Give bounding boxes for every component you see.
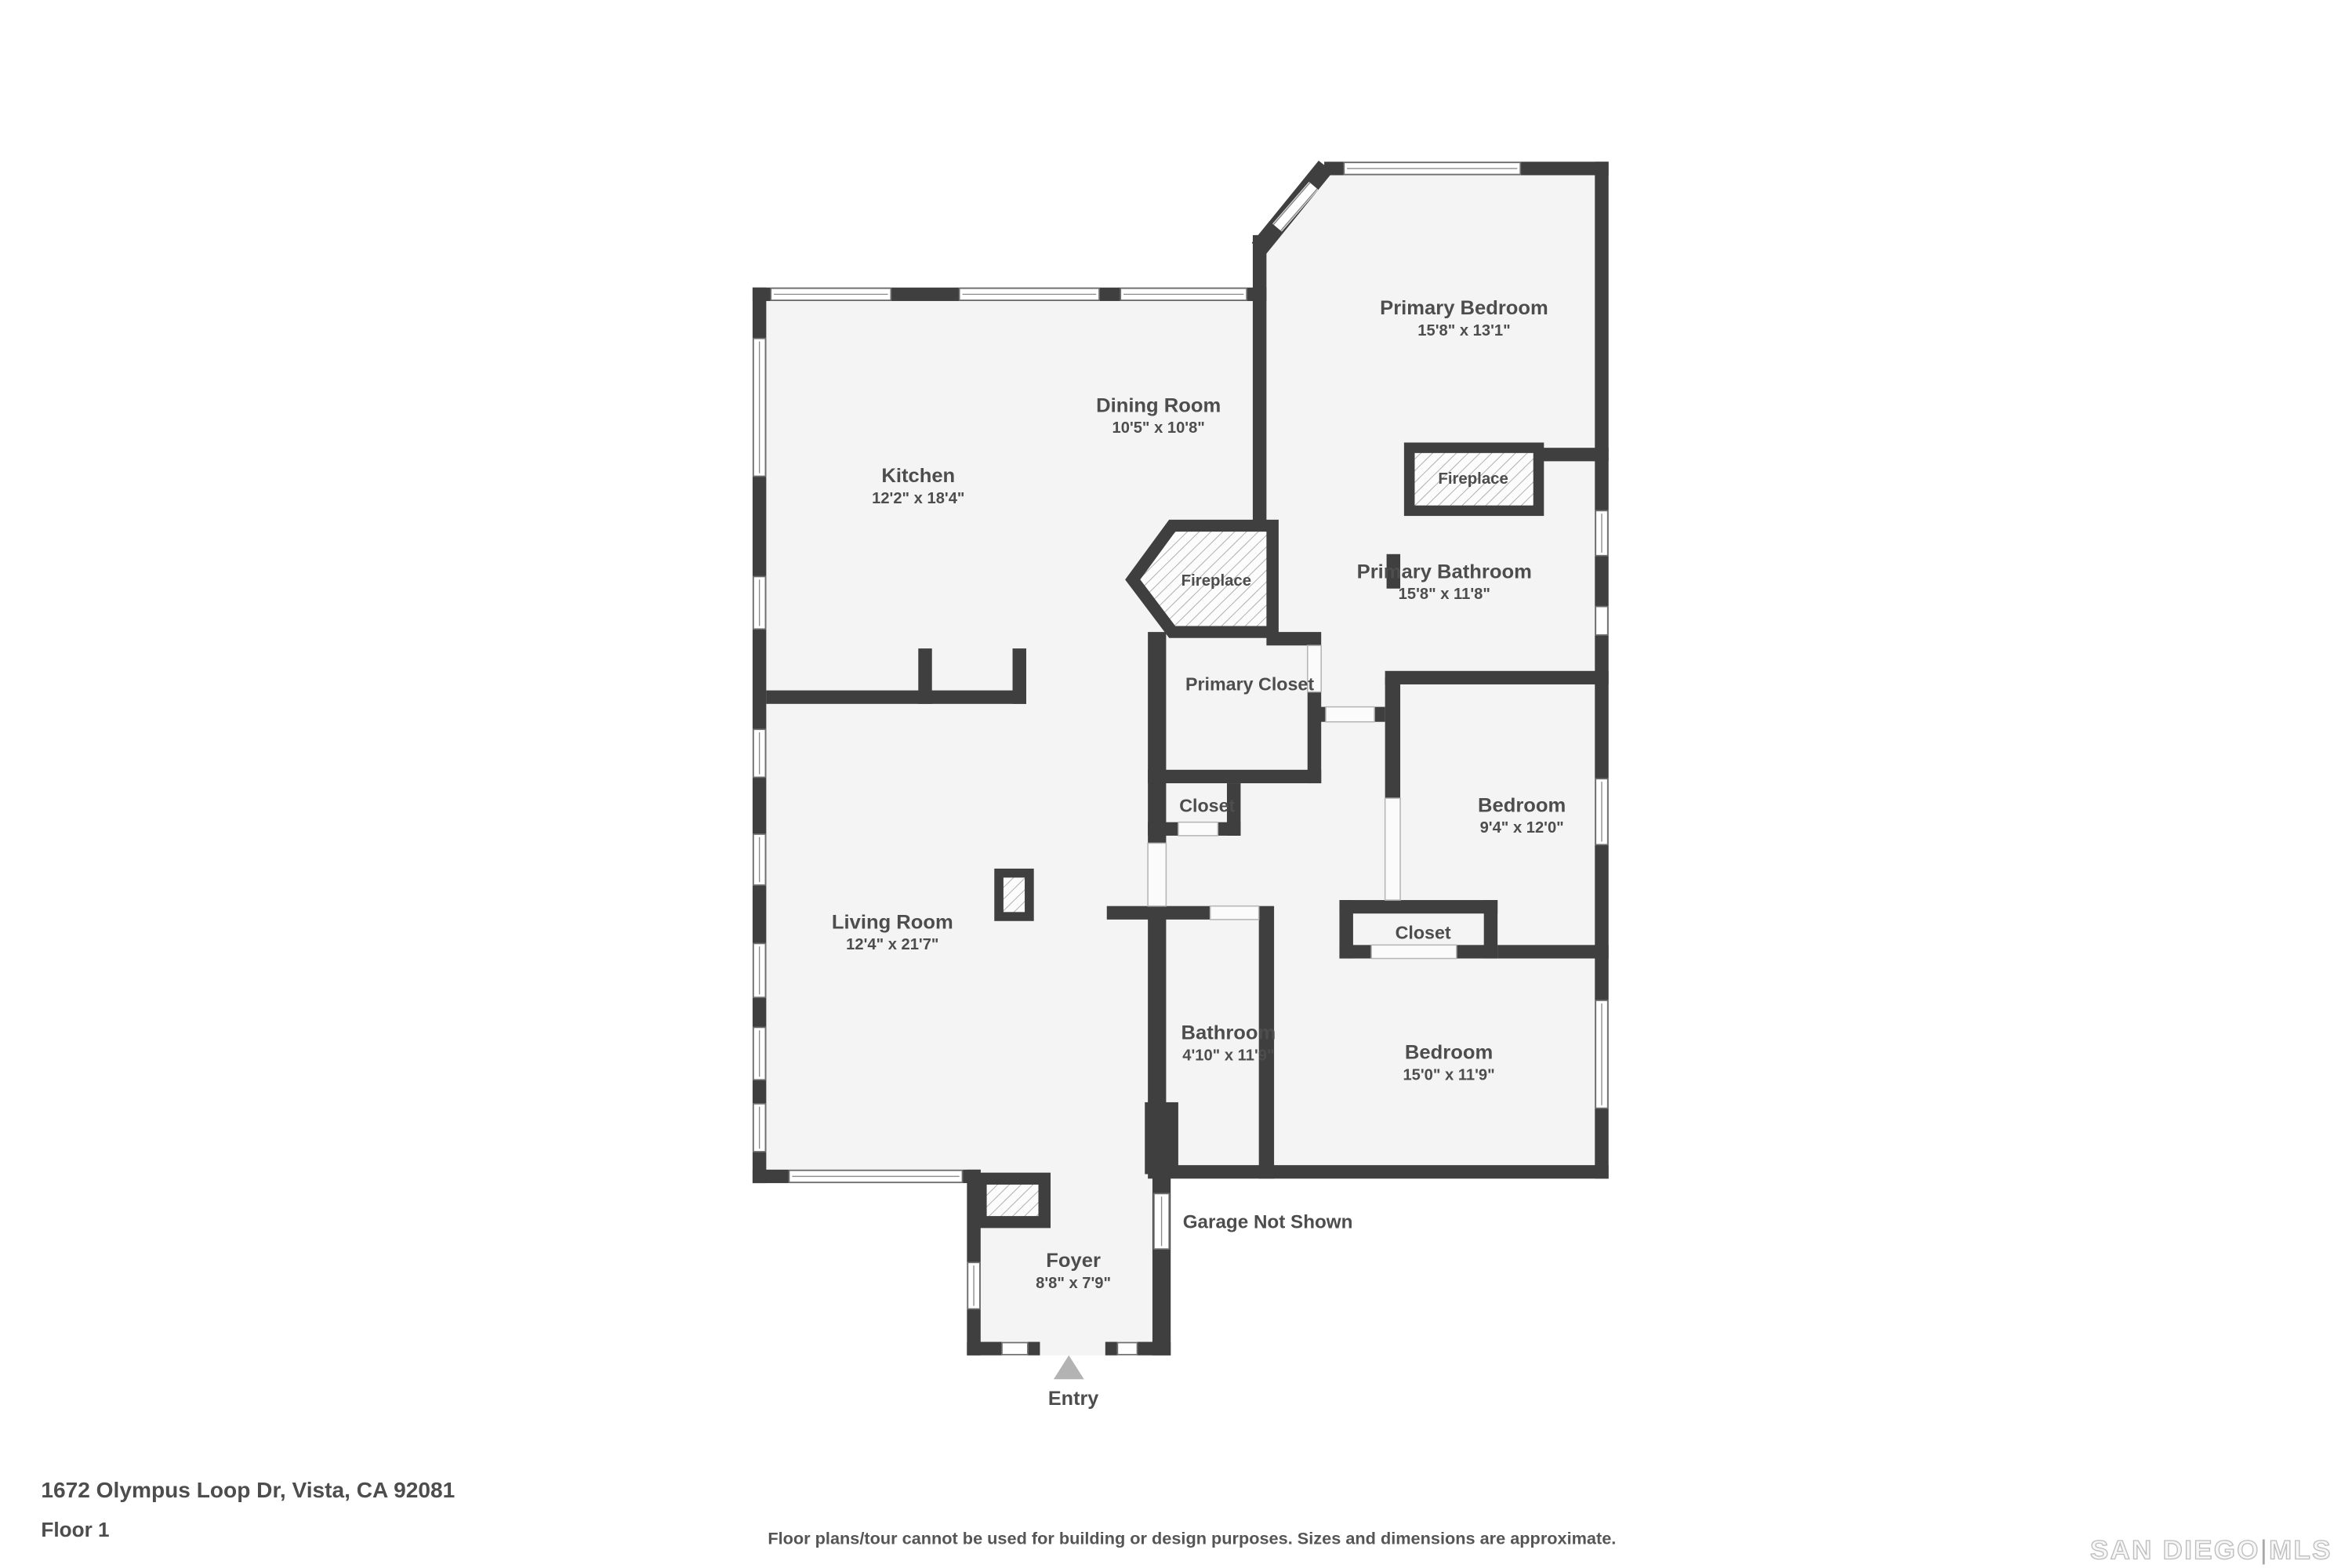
primary-bedroom-dims: 15'8" x 13'1" xyxy=(1417,322,1510,339)
bedroom-2-dims: 15'0" x 11'9" xyxy=(1403,1066,1494,1083)
bedroom-2-label: Bedroom xyxy=(1405,1042,1493,1064)
kitchen-dims: 12'2" x 18'4" xyxy=(872,490,964,507)
floorplan-svg: Kitchen 12'2" x 18'4" Dining Room 10'5" … xyxy=(0,0,2352,1568)
primary-bathroom-label: Primary Bathroom xyxy=(1357,561,1532,583)
footer: 1672 Olympus Loop Dr, Vista, CA 92081 Fl… xyxy=(41,1478,2332,1565)
floor-text: Floor 1 xyxy=(41,1518,109,1541)
primary-closet-label: Primary Closet xyxy=(1185,674,1314,695)
living-room-dims: 12'4" x 21'7" xyxy=(846,936,938,953)
watermark-suffix: MLS xyxy=(2269,1536,2332,1566)
living-room-label: Living Room xyxy=(832,912,953,934)
primary-bathroom-dims: 15'8" x 11'8" xyxy=(1399,586,1490,603)
foyer-niche-hatch xyxy=(981,1178,1044,1221)
kitchen-label: Kitchen xyxy=(881,465,955,487)
address-text: 1672 Olympus Loop Dr, Vista, CA 92081 xyxy=(41,1478,455,1502)
entry-arrow-icon xyxy=(1054,1356,1084,1380)
bathroom-dims: 4'10" x 11'9" xyxy=(1182,1047,1274,1065)
dining-room-label: Dining Room xyxy=(1096,394,1221,416)
fireplace-bedroom-label: Fireplace xyxy=(1438,470,1508,488)
floorplan-page: Kitchen 12'2" x 18'4" Dining Room 10'5" … xyxy=(0,0,2352,1568)
dining-room-dims: 10'5" x 10'8" xyxy=(1112,419,1205,437)
hall-closet-label: Closet xyxy=(1179,795,1235,815)
primary-bedroom-label: Primary Bedroom xyxy=(1380,297,1548,319)
bedroom-1-label: Bedroom xyxy=(1478,795,1566,817)
garage-note-label: Garage Not Shown xyxy=(1183,1212,1353,1233)
foyer-dims: 8'8" x 7'9" xyxy=(1036,1275,1111,1292)
bathroom-label: Bathroom xyxy=(1181,1022,1276,1044)
fireplace-dining-label: Fireplace xyxy=(1181,572,1251,590)
foyer-label: Foyer xyxy=(1046,1250,1101,1272)
bedroom-1-dims: 9'4" x 12'0" xyxy=(1480,819,1564,837)
watermark-divider: | xyxy=(2260,1536,2269,1566)
watermark-brand: SAN DIEGO xyxy=(2090,1536,2260,1566)
mls-watermark: SAN DIEGO|MLS xyxy=(2090,1536,2332,1566)
living-room-heater-hatch xyxy=(999,873,1029,916)
entry-label: Entry xyxy=(1048,1388,1099,1410)
bedroom-closet-label: Closet xyxy=(1396,923,1451,943)
disclaimer-text: Floor plans/tour cannot be used for buil… xyxy=(768,1529,1616,1548)
